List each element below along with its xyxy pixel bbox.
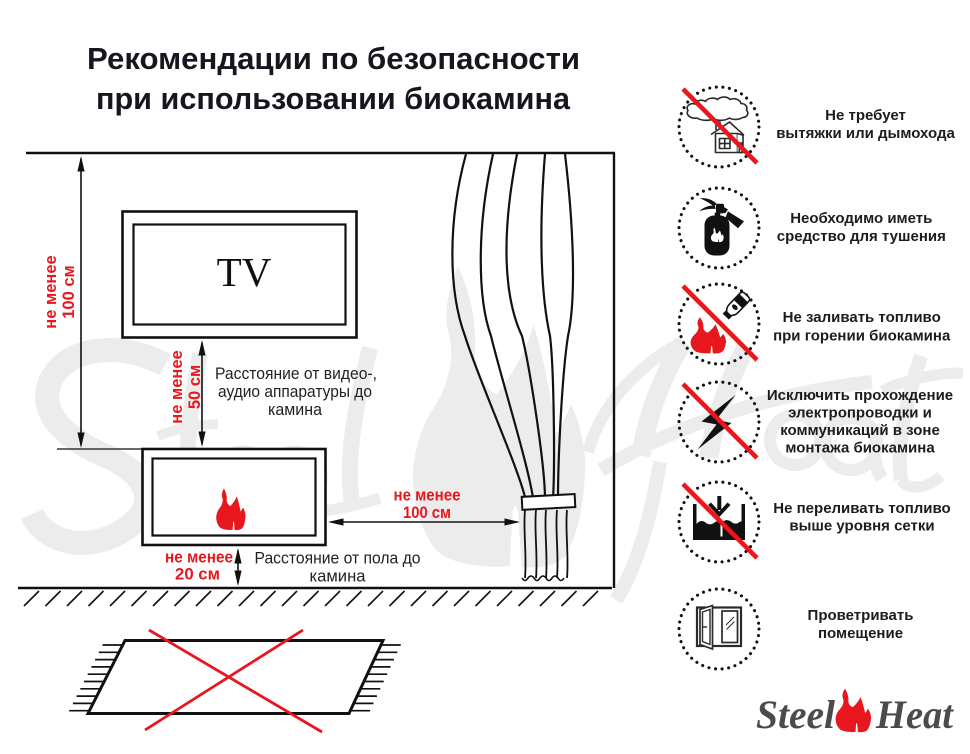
- svg-text:20 см: 20 см: [175, 566, 220, 584]
- svg-text:Необходимо иметь: Необходимо иметь: [790, 210, 932, 227]
- svg-text:электропроводки и: электропроводки и: [788, 404, 932, 421]
- svg-text:вытяжки или дымохода: вытяжки или дымохода: [776, 125, 955, 142]
- svg-text:камина: камина: [268, 400, 323, 419]
- svg-text:Расстояние от пола до: Расстояние от пола до: [255, 549, 421, 568]
- svg-text:помещение: помещение: [818, 625, 903, 642]
- svg-text:Проветривать: Проветривать: [808, 607, 914, 624]
- svg-text:выше уровня сетки: выше уровня сетки: [789, 518, 934, 535]
- svg-text:не менее: не менее: [165, 549, 233, 567]
- svg-text:TV: TV: [217, 249, 272, 295]
- svg-text:не менее: не менее: [394, 487, 461, 505]
- svg-text:Расстояние от видео-,: Расстояние от видео-,: [215, 364, 377, 383]
- svg-text:камина: камина: [310, 567, 367, 586]
- svg-text:не менее: не менее: [168, 350, 186, 423]
- svg-text:Steel: Steel: [756, 692, 836, 737]
- svg-text:100 см: 100 см: [60, 265, 78, 319]
- svg-text:100 см: 100 см: [403, 504, 451, 522]
- svg-text:Не переливать топливо: Не переливать топливо: [773, 500, 950, 517]
- svg-text:не менее: не менее: [42, 255, 60, 328]
- svg-text:Рекомендации по безопасности: Рекомендации по безопасности: [87, 41, 580, 76]
- svg-text:Исключить прохождение: Исключить прохождение: [767, 387, 953, 404]
- svg-text:Не требует: Не требует: [825, 107, 906, 124]
- svg-text:при использовании биокамина: при использовании биокамина: [96, 81, 571, 116]
- svg-text:50 см: 50 см: [186, 365, 204, 409]
- svg-text:монтажа биокамина: монтажа биокамина: [785, 439, 935, 456]
- svg-text:при горении биокамина: при горении биокамина: [773, 327, 951, 344]
- svg-text:средство для тушения: средство для тушения: [777, 228, 946, 245]
- svg-text:коммуникаций в зоне: коммуникаций в зоне: [780, 422, 940, 439]
- svg-text:Heat: Heat: [875, 692, 955, 737]
- svg-text:Не заливать топливо: Не заливать топливо: [783, 309, 941, 326]
- svg-text:аудио аппаратуры до: аудио аппаратуры до: [218, 382, 372, 401]
